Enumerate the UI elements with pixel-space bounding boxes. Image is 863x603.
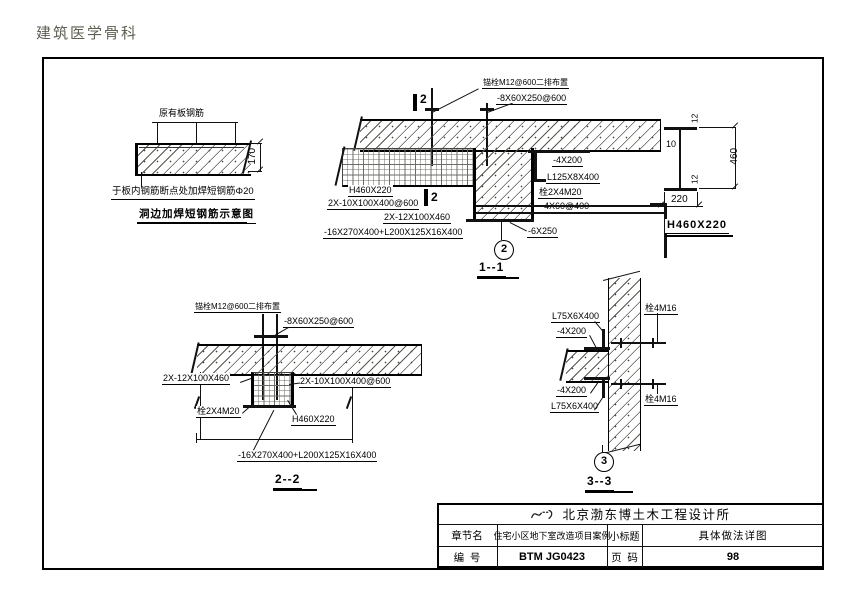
h-section-title: H460X220 <box>665 219 729 234</box>
dim-460: 460 <box>729 140 742 172</box>
leader-line <box>657 313 658 342</box>
top-plate <box>528 150 590 153</box>
detail-bubble: 3 <box>594 452 614 472</box>
base-assembly-label: -16X270X400+L200X125X16X400 <box>323 227 463 239</box>
end-plate-label: 2X-12X100X460 <box>383 212 451 224</box>
chapter-label: 章节名 <box>437 524 497 546</box>
subtitle-label: 小标题 <box>607 524 642 546</box>
title-underline <box>477 277 519 279</box>
dim-extension <box>196 433 197 443</box>
plate-top <box>584 347 610 350</box>
plate-bottom <box>584 377 610 380</box>
weld-note: 于板内钢筋断点处加焊短钢筋Φ20 <box>111 187 255 200</box>
bolt-head <box>620 338 622 348</box>
batten-plate-label: -8X60X250@600 <box>283 316 354 328</box>
leader-bracket <box>152 122 238 123</box>
section-1-1-title: 1--1 <box>477 260 506 277</box>
bolt-head <box>652 379 654 389</box>
title-underline <box>137 222 247 224</box>
page-label: 页 码 <box>607 546 642 568</box>
sole-plate-label: -6X250 <box>527 226 558 238</box>
anchor-plate <box>254 335 288 338</box>
plate-4x200-label: -4X200 <box>552 155 583 167</box>
chapter-value: 住宅小区地下室改造项目案例 <box>497 524 607 546</box>
web-thickness: 10 <box>665 139 677 150</box>
title-underline <box>665 235 733 237</box>
company-row: 北京渤东博土木工程设计所 <box>440 505 821 522</box>
number-label: 编 号 <box>437 546 497 568</box>
leader-line <box>602 445 603 452</box>
plate-top-label: -4X200 <box>556 326 587 338</box>
section-2-2-title: 2--2 <box>273 472 302 489</box>
bolt-head <box>652 338 654 348</box>
dim-extension <box>664 192 665 206</box>
bolts-bottom-label: 栓4M16 <box>644 394 678 406</box>
flange-thickness-bottom: 12 <box>691 169 702 189</box>
concrete-wall <box>608 278 641 451</box>
bolt-head <box>620 379 622 389</box>
section-3-3-title: 3--3 <box>585 474 614 491</box>
stiffener-label: 2X-10X100X400@600 <box>299 376 391 388</box>
angle-top-label: L75X6X400 <box>551 311 600 323</box>
steel-beam-mesh <box>342 148 475 187</box>
beam-label: H460X220 <box>291 414 336 426</box>
batten-line <box>476 212 666 214</box>
rebar-label: 原有板钢筋 <box>158 108 205 119</box>
dim-220: 220 <box>670 194 689 207</box>
anchor-note-label: 锚栓M12@600二排布置 <box>482 78 569 89</box>
bolts-label: 栓2X4M20 <box>196 406 241 418</box>
end-plate-label: 2X-12X100X460 <box>162 373 230 385</box>
base-assembly-label: -16X270X400+L200X125X16X400 <box>237 450 377 462</box>
section-cut-mark <box>413 94 417 111</box>
anchor-note-label: 锚栓M12@600二排布置 <box>194 302 281 313</box>
watermark-text: 建筑医学骨科 <box>36 22 138 43</box>
beam-label: H460X220 <box>348 185 393 197</box>
concrete-column <box>473 148 534 219</box>
leader-line <box>657 385 658 394</box>
stiffener-label: 2X-10X100X400@600 <box>327 198 419 210</box>
flange-thickness-top: 12 <box>691 108 702 128</box>
angle-label: L125X8X400 <box>546 172 600 184</box>
dim-extension <box>352 433 353 443</box>
angle-leg <box>534 150 537 182</box>
dim-170: 170 <box>247 141 260 171</box>
company-name: 北京渤东博土木工程设计所 <box>562 504 730 523</box>
section-cut-mark <box>424 189 428 206</box>
drawing-page: 建筑医学骨科 原有板钢筋 170 于板内钢筋断点处加焊短钢筋Φ20 洞边加焊短钢… <box>0 0 863 603</box>
web <box>679 130 681 188</box>
rebar-line <box>139 147 244 148</box>
title-underline <box>273 489 317 491</box>
number-value: BTM JG0423 <box>497 546 607 568</box>
page-value: 98 <box>642 546 824 568</box>
plate-bottom-label: -4X200 <box>556 385 587 397</box>
leader-line <box>157 123 158 143</box>
title-underline <box>585 491 633 493</box>
leader-line <box>235 123 236 143</box>
dimension-line <box>196 439 353 440</box>
angle-bottom-label: L75X6X400 <box>550 401 599 413</box>
bolts-label: 栓2X4M20 <box>538 187 583 199</box>
sole-plate <box>466 219 534 222</box>
leader-line <box>141 172 142 187</box>
leader-line <box>501 222 502 240</box>
batten-line <box>476 205 666 207</box>
concrete-slab <box>197 344 422 376</box>
leader-line <box>196 123 197 143</box>
section-cut-number: 2 <box>420 92 427 106</box>
bolts-top-label: 栓4M16 <box>644 303 678 315</box>
company-logo-icon <box>530 507 556 521</box>
section-cut-number: 2 <box>431 190 438 204</box>
detail-bubble: 2 <box>494 240 514 260</box>
subtitle-value: 具体做法详图 <box>642 524 824 546</box>
